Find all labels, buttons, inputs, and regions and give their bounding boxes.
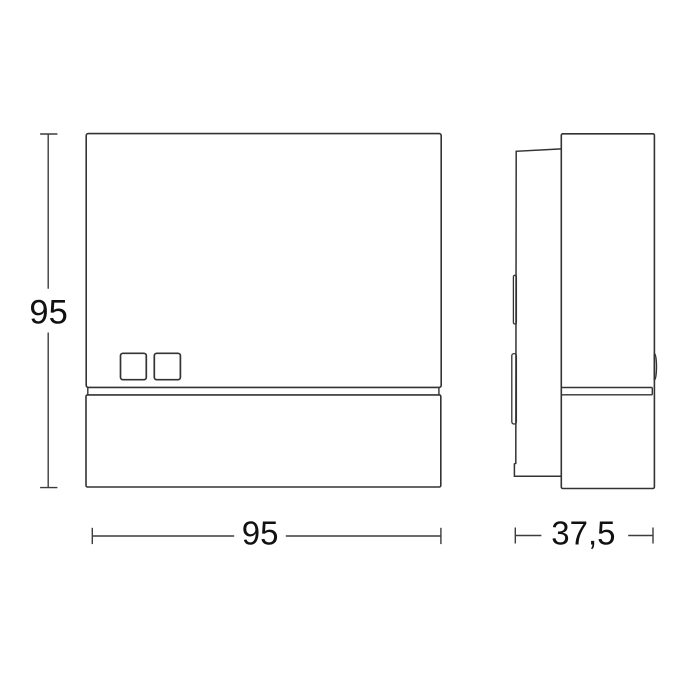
svg-text:95: 95 xyxy=(29,294,67,332)
svg-text:37,5: 37,5 xyxy=(551,514,615,551)
svg-text:95: 95 xyxy=(242,514,279,551)
